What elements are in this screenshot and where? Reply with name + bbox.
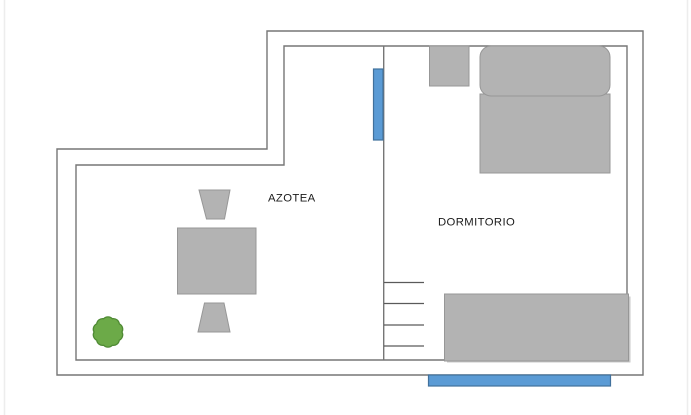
wardrobe-body (445, 294, 629, 361)
room-label-dormitorio: DORMITORIO (438, 217, 515, 229)
chair-top (199, 190, 230, 219)
floor-plan-page: AZOTEA DORMITORIO (0, 0, 691, 415)
bed-pillow-headboard (480, 46, 610, 96)
window-bottom (429, 375, 611, 386)
wardrobe (445, 294, 631, 363)
floor-plan-canvas: AZOTEA DORMITORIO (0, 0, 691, 415)
room-label-azotea: AZOTEA (268, 193, 316, 205)
nightstand (430, 46, 470, 86)
window-vertical (374, 69, 384, 140)
chair-bottom (198, 303, 230, 332)
stairs (384, 283, 424, 347)
plant (93, 317, 122, 347)
bed-mattress (480, 94, 610, 173)
double-bed (480, 46, 610, 173)
dining-table (178, 228, 257, 294)
